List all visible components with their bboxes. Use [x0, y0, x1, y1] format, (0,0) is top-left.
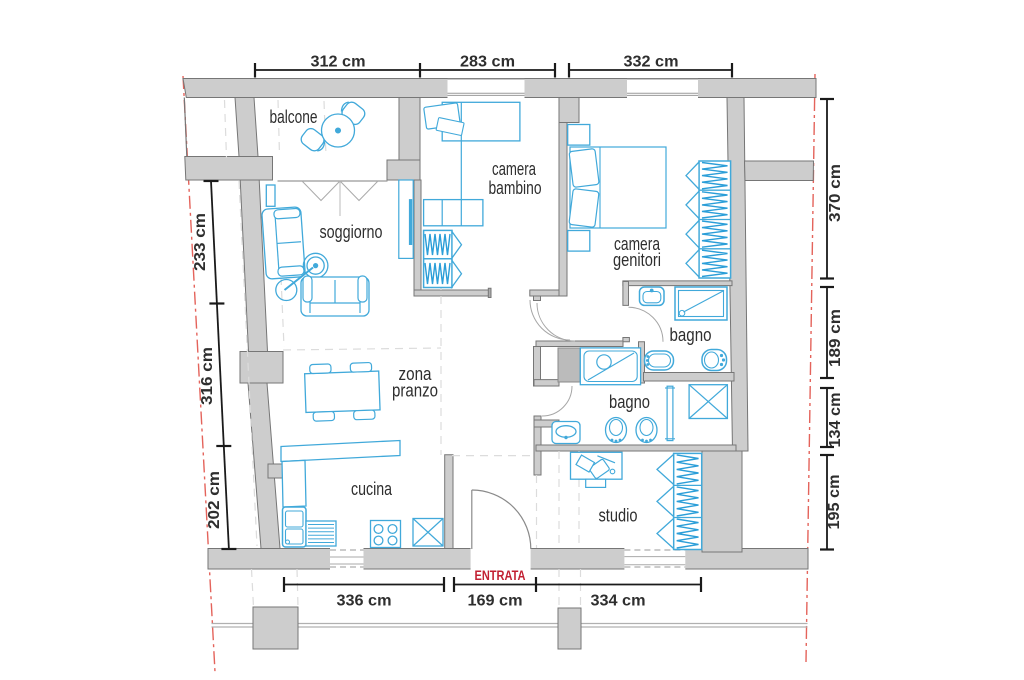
svg-text:332 cm: 332 cm: [624, 54, 679, 71]
svg-text:233 cm: 233 cm: [192, 213, 209, 271]
svg-text:316 cm: 316 cm: [199, 347, 216, 405]
svg-text:134 cm: 134 cm: [827, 393, 844, 448]
svg-text:soggiorno: soggiorno: [320, 222, 383, 242]
svg-text:pranzo: pranzo: [392, 381, 438, 401]
svg-text:169 cm: 169 cm: [468, 593, 523, 610]
svg-text:bagno: bagno: [609, 392, 650, 412]
svg-text:312 cm: 312 cm: [311, 54, 366, 71]
svg-text:283 cm: 283 cm: [460, 54, 515, 71]
svg-text:bagno: bagno: [670, 325, 712, 345]
svg-text:ENTRATA: ENTRATA: [475, 568, 526, 583]
svg-text:cucina: cucina: [351, 479, 393, 499]
svg-text:336 cm: 336 cm: [337, 593, 392, 610]
svg-text:studio: studio: [599, 506, 638, 526]
svg-text:370 cm: 370 cm: [827, 164, 844, 222]
svg-text:bambino: bambino: [489, 178, 542, 198]
svg-text:334 cm: 334 cm: [591, 593, 646, 610]
svg-text:202 cm: 202 cm: [206, 471, 223, 529]
svg-text:genitori: genitori: [613, 250, 661, 270]
svg-text:195 cm: 195 cm: [826, 475, 843, 530]
svg-text:camera: camera: [492, 159, 537, 179]
svg-text:189 cm: 189 cm: [827, 309, 844, 367]
svg-text:balcone: balcone: [270, 107, 318, 127]
